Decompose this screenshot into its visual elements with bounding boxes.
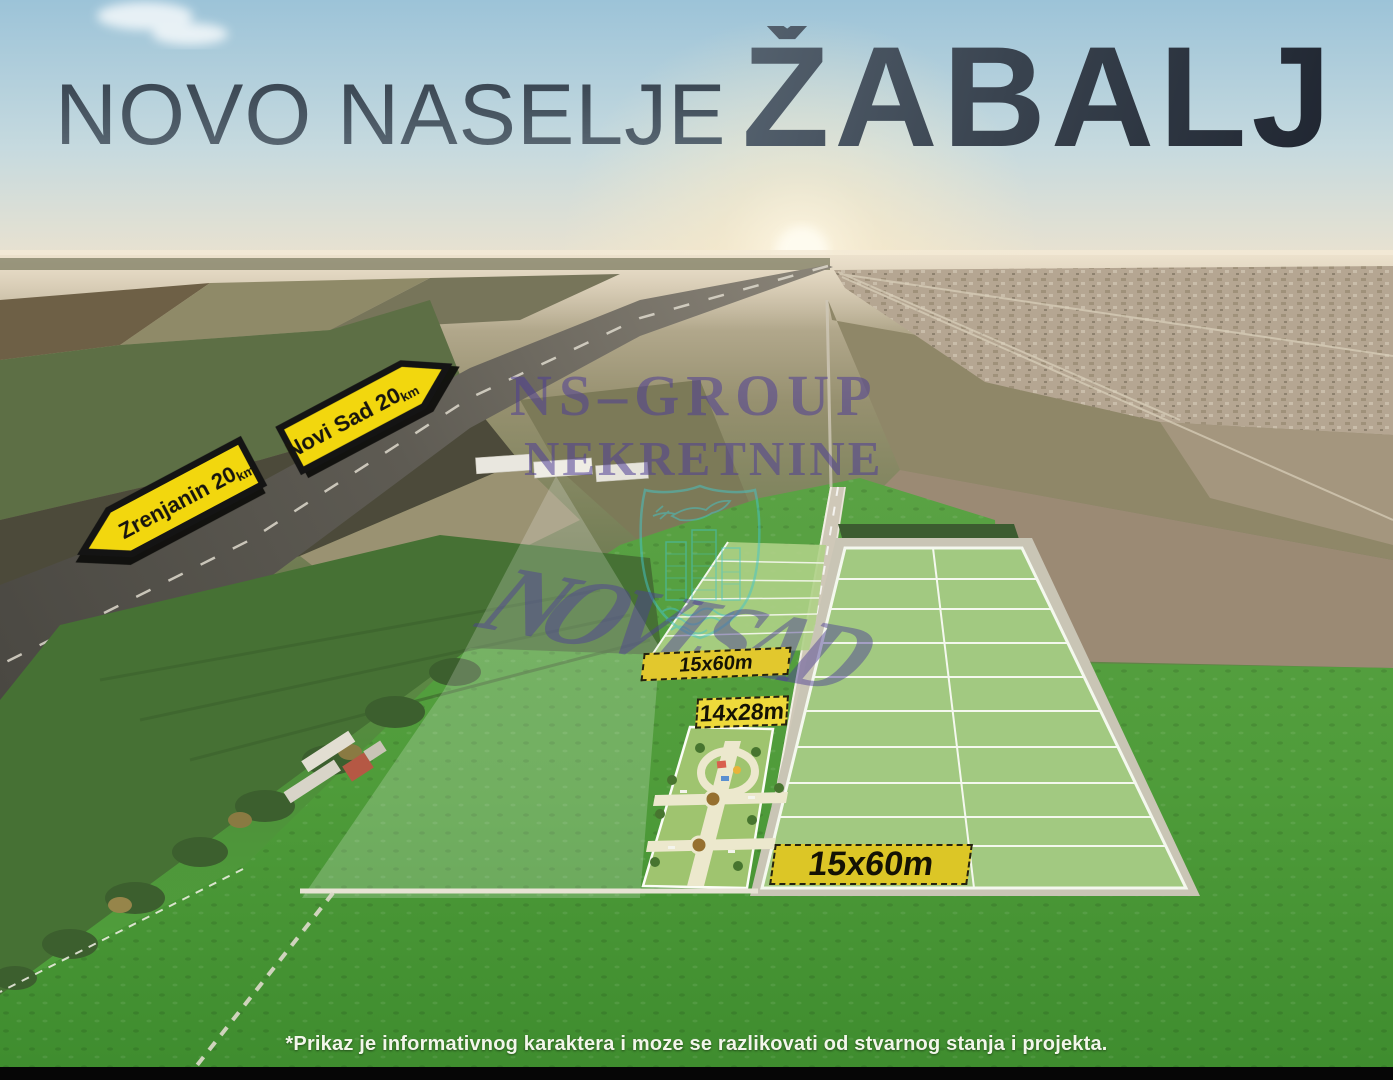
disclaimer-text: *Prikaz je informativnog karaktera i moz… xyxy=(0,1033,1393,1056)
aerial-scene xyxy=(0,0,1393,1080)
plot-size-label-park: 14x28m xyxy=(695,695,789,728)
plot-size-label-banner: 15x60m xyxy=(769,844,973,885)
flowerbed xyxy=(705,791,721,807)
promo-image-novo-naselje-zabalj: NOVO NASELJE ŽABALJ Novi Sad 20km Zrenja… xyxy=(0,0,1393,1080)
letterbox-bar xyxy=(0,1067,1393,1080)
flowerbed xyxy=(691,837,707,853)
